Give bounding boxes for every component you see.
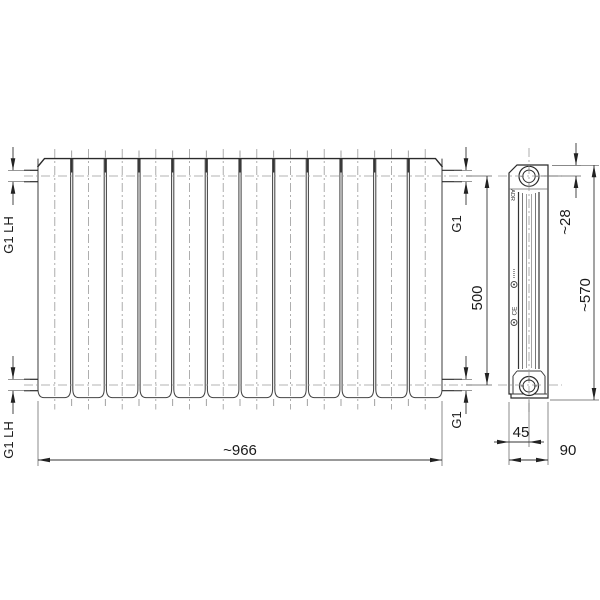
front-view: [24, 149, 472, 410]
side-view: ADR CE: [498, 148, 562, 414]
dim-label-height-570: ~570: [577, 278, 594, 312]
adr-marking: ADR: [509, 189, 515, 201]
dim-label-g1lh-bottom-left: G1 LH: [1, 421, 16, 459]
dim-label-g1-bottom-right: G1: [449, 411, 464, 428]
radiator-sections: [38, 149, 442, 410]
dim-label-height-500: 500: [469, 285, 486, 310]
dim-label-g1-top-right: G1: [449, 215, 464, 232]
ce-marking: CE: [512, 306, 519, 316]
brand-logo-dot-icon: [513, 284, 515, 286]
dim-label-width-966: ~966: [223, 442, 257, 459]
cert-logo-dot-icon: [513, 322, 515, 324]
dim-label-offset-45: 45: [513, 424, 530, 441]
dim-label-depth-90: 90: [560, 442, 577, 459]
technical-drawing: ADR CE: [0, 0, 600, 600]
radiator-drawing-canvas: ADR CE: [0, 0, 600, 600]
dim-label-g1lh-top-left: G1 LH: [1, 216, 16, 254]
dim-label-depth-28: ~28: [557, 209, 574, 234]
